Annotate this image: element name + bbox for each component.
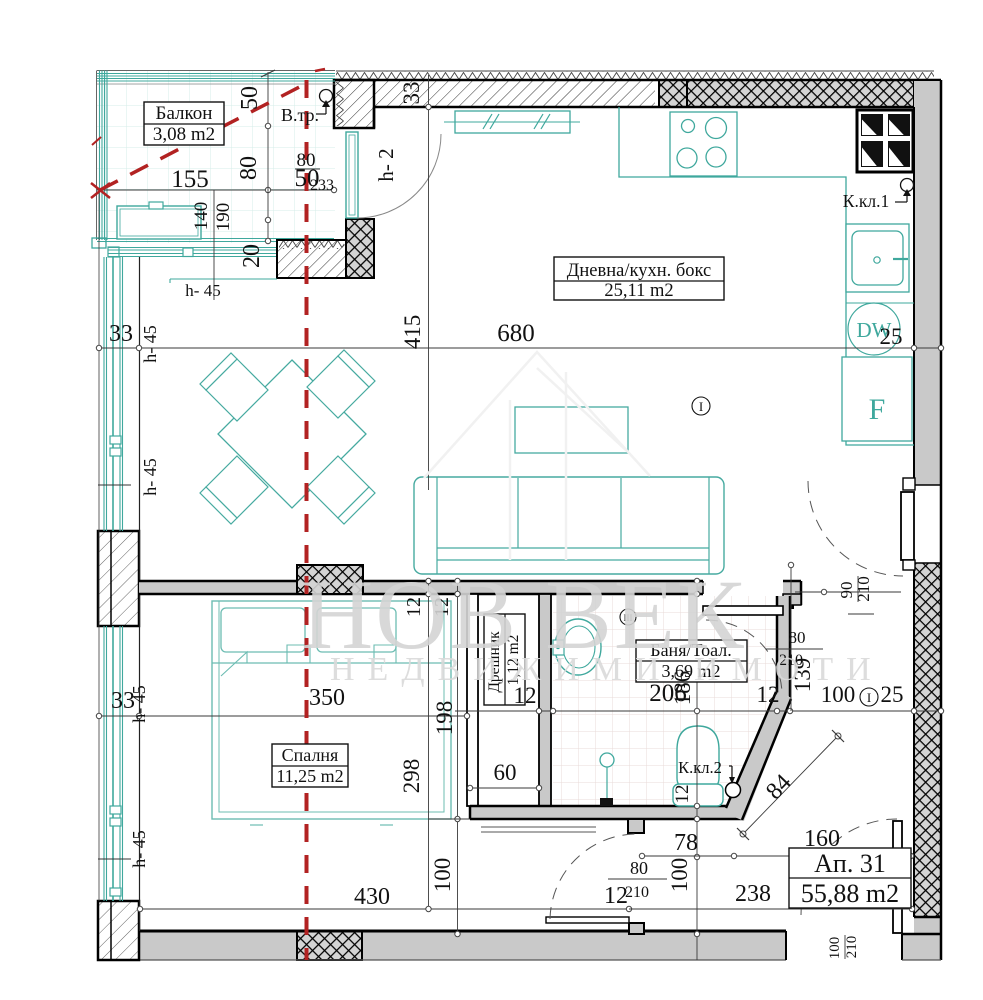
svg-text:11,25 m2: 11,25 m2 [276, 766, 343, 786]
svg-text:33: 33 [111, 688, 135, 714]
svg-text:350: 350 [309, 685, 345, 711]
svg-text:33: 33 [109, 321, 133, 347]
svg-text:198: 198 [432, 701, 457, 736]
svg-text:К.кл.2: К.кл.2 [678, 758, 722, 777]
svg-text:В.тр.: В.тр. [281, 105, 319, 125]
svg-text:25: 25 [880, 324, 903, 349]
svg-text:55,88 m2: 55,88 m2 [801, 879, 899, 908]
svg-text:210: 210 [854, 576, 873, 602]
svg-text:680: 680 [497, 320, 535, 347]
svg-text:80: 80 [789, 628, 806, 647]
svg-text:25,11 m2: 25,11 m2 [604, 281, 673, 301]
svg-text:190: 190 [213, 203, 234, 232]
svg-text:I: I [699, 399, 703, 414]
svg-text:h- 45: h- 45 [140, 325, 160, 363]
svg-text:h- 45: h- 45 [129, 830, 149, 868]
svg-text:80: 80 [630, 858, 648, 878]
svg-text:12: 12 [672, 785, 693, 804]
svg-text:210: 210 [625, 884, 649, 901]
svg-text:h- 45: h- 45 [185, 281, 220, 300]
svg-text:60: 60 [494, 760, 517, 785]
svg-text:К.кл.1: К.кл.1 [843, 191, 889, 211]
svg-text:Дневна/кухн. бокс: Дневна/кухн. бокс [567, 261, 712, 281]
svg-text:12: 12 [604, 883, 628, 909]
svg-text:233: 233 [310, 177, 334, 194]
svg-text:155: 155 [171, 166, 209, 193]
svg-text:210: 210 [844, 936, 860, 959]
svg-text:I: I [867, 690, 871, 705]
svg-text:100: 100 [667, 858, 692, 893]
svg-text:50: 50 [237, 86, 263, 110]
svg-text:Спалня: Спалня [282, 745, 339, 765]
svg-text:100: 100 [827, 937, 843, 960]
svg-text:80: 80 [236, 156, 262, 180]
svg-text:160: 160 [804, 826, 840, 852]
svg-text:Балкон: Балкон [156, 103, 213, 124]
svg-text:h- 45: h- 45 [140, 458, 160, 496]
svg-text:Ап. 31: Ап. 31 [814, 849, 886, 878]
svg-text:3,08 m2: 3,08 m2 [153, 124, 215, 145]
svg-text:140: 140 [191, 202, 212, 231]
svg-text:238: 238 [735, 881, 771, 907]
svg-text:100: 100 [430, 858, 455, 893]
svg-text:298: 298 [399, 759, 424, 794]
svg-text:78: 78 [674, 830, 698, 856]
svg-text:430: 430 [354, 884, 390, 910]
svg-text:33: 33 [399, 82, 424, 105]
svg-text:415: 415 [400, 315, 425, 350]
svg-text:h- 2: h- 2 [374, 148, 398, 181]
svg-text:20: 20 [239, 244, 265, 268]
svg-text:F: F [869, 393, 886, 426]
svg-text:25: 25 [881, 682, 904, 707]
svg-text:НЕДВИЖИМИ ИМОТИ: НЕДВИЖИМИ ИМОТИ [330, 651, 884, 688]
